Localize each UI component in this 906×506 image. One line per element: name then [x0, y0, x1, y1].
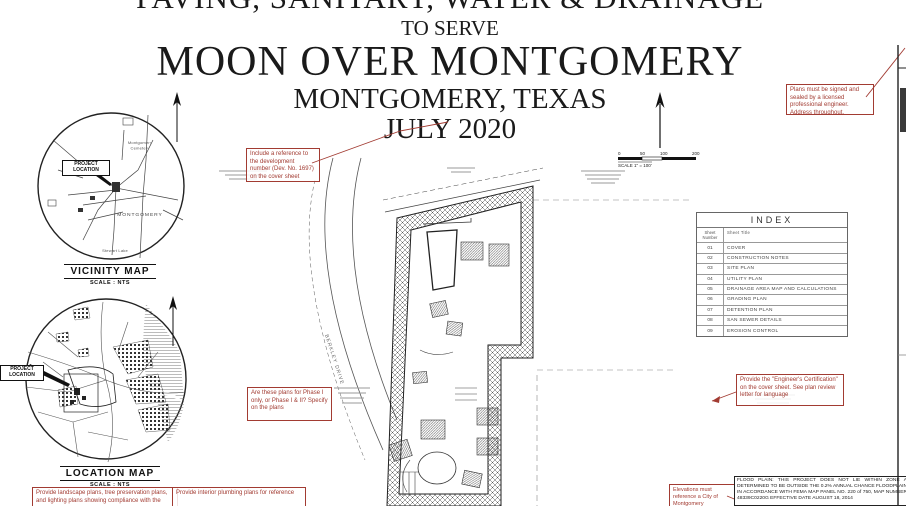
index-col-number: Sheet Number [697, 228, 724, 242]
annotation-certification: Provide the "Engineer's Certification" o… [736, 374, 844, 406]
sheet-title: DETENTION PLAN [724, 306, 776, 315]
location-map-title: LOCATION MAP [60, 466, 160, 481]
location-map [18, 292, 193, 470]
sheet-number: 06 [697, 295, 724, 304]
sheet-title: CONSTRUCTION NOTES [724, 254, 792, 263]
vicinity-project-location-label: PROJECT LOCATION [62, 160, 110, 176]
annotation-phase: Are these plans for Phase I only, or Pha… [247, 387, 332, 421]
index-row: 09EROSION CONTROL [697, 326, 847, 335]
sheet-number: 08 [697, 316, 724, 325]
index-col-title: Sheet Title [724, 228, 753, 242]
annotation-signed-sealed: Plans must be signed and sealed by a lic… [786, 84, 874, 115]
annotation-elevations: Elevations must reference a City of Mont… [669, 484, 735, 506]
sheet-border [890, 40, 906, 506]
sheet-title: GRADING PLAN [724, 295, 770, 304]
sheet-title: SITE PLAN [724, 264, 757, 273]
north-arrow-icon [168, 296, 178, 348]
index-row: 01COVER [697, 243, 847, 253]
north-arrow-icon [654, 92, 666, 150]
sheet-index-table: INDEX Sheet Number Sheet Title 01COVER 0… [696, 212, 848, 337]
index-row: 07DETENTION PLAN [697, 306, 847, 316]
sheet-title: DRAINAGE AREA MAP AND CALCULATIONS [724, 285, 840, 294]
street-label-berkley: BERKLEY DRIVE [323, 334, 345, 386]
sheet-title: UTILITY PLAN [724, 275, 765, 284]
plan-cover-sheet: PAVING, SANITARY, WATER & DRAINAGE TO SE… [0, 0, 906, 506]
index-title: INDEX [697, 213, 847, 228]
illegible-note [443, 165, 479, 175]
flood-plain-note: FLOOD PLAIN: THIS PROJECT DOES NOT LIE W… [734, 476, 906, 506]
sheet-number: 01 [697, 243, 724, 252]
index-row: 06GRADING PLAN [697, 295, 847, 305]
vicinity-cemetery-label: Montgomery Cemetery [122, 141, 158, 152]
scale-tick-50: 50 [640, 151, 646, 156]
vicinity-map-caption: VICINITY MAP SCALE : NTS [55, 261, 165, 286]
to-serve-label: TO SERVE [120, 17, 780, 39]
location-map-caption: LOCATION MAP SCALE : NTS [55, 463, 165, 488]
vicinity-town-label: MONTGOMERY [113, 212, 167, 218]
index-header-row: Sheet Number Sheet Title [697, 228, 847, 243]
project-title: MOON OVER MONTGOMERY [120, 40, 780, 84]
index-row: 03SITE PLAN [697, 264, 847, 274]
project-city: MONTGOMERY, TEXAS [120, 84, 780, 114]
illegible-note [575, 168, 631, 188]
scale-tick-0: 0 [618, 151, 621, 156]
index-row: 08SAN SEWER DETAILS [697, 316, 847, 326]
plan-type-title: PAVING, SANITARY, WATER & DRAINAGE [120, 0, 780, 15]
sheet-number: 03 [697, 264, 724, 273]
annotation-landscape: Provide landscape plans, tree preservati… [32, 487, 178, 506]
sheet-number: 02 [697, 254, 724, 263]
illegible-note [330, 385, 374, 407]
north-arrow-icon [172, 92, 182, 144]
scale-tick-100: 100 [660, 151, 668, 156]
sheet-number: 07 [697, 306, 724, 315]
vicinity-map-title: VICINITY MAP [64, 264, 155, 279]
index-row: 04UTILITY PLAN [697, 275, 847, 285]
vicinity-lake-label: Stewart Lake [97, 248, 133, 253]
sheet-title: SAN SEWER DETAILS [724, 316, 785, 325]
annotation-dev-number: Include a reference to the development n… [246, 148, 320, 182]
site-plan: BERKLEY DRIVE [285, 120, 705, 506]
location-project-location-label: PROJECT LOCATION [0, 365, 44, 381]
index-row: 02CONSTRUCTION NOTES [697, 254, 847, 264]
annotation-plumbing: Provide interior plumbing plans for refe… [172, 487, 306, 506]
index-row: 05DRAINAGE AREA MAP AND CALCULATIONS [697, 285, 847, 295]
sheet-number: 04 [697, 275, 724, 284]
sheet-number: 05 [697, 285, 724, 294]
scale-tick-200: 200 [692, 151, 700, 156]
sheet-number: 09 [697, 326, 724, 335]
sheet-title: COVER [724, 243, 749, 252]
sheet-title: EROSION CONTROL [724, 326, 781, 335]
vicinity-map-scale: SCALE : NTS [55, 280, 165, 286]
